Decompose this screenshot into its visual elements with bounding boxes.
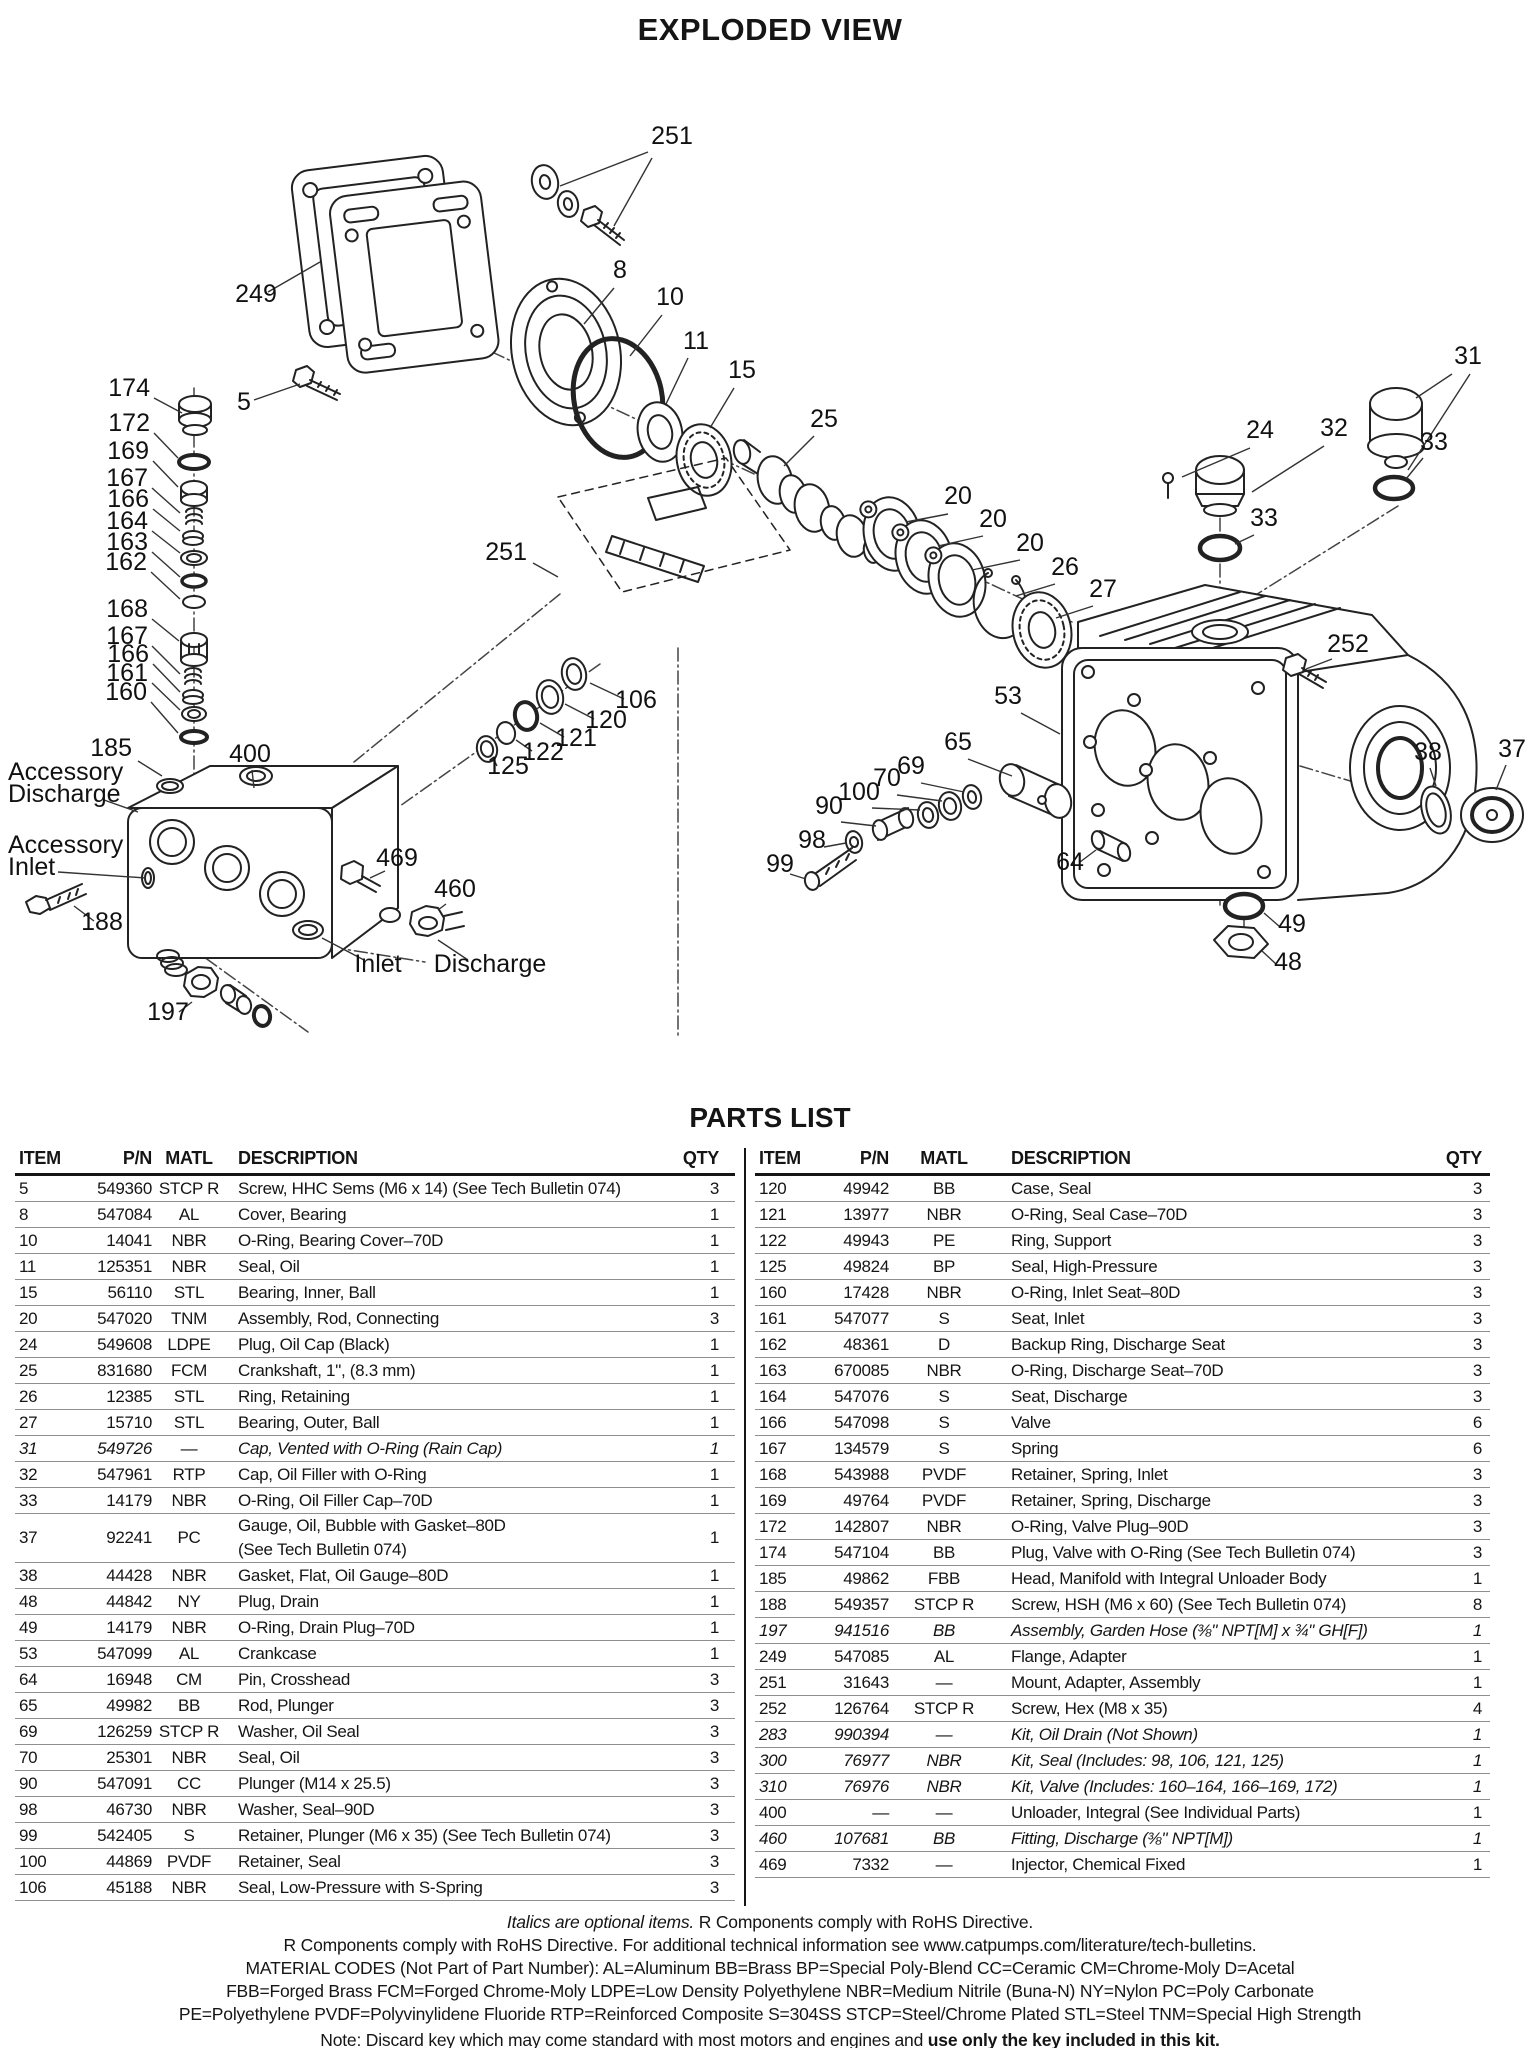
column-header: ITEM	[15, 1146, 76, 1175]
table-row: 2612385STLRing, Retaining1	[15, 1384, 735, 1410]
callout-label: 252	[1327, 630, 1369, 658]
parts-table-right: ITEMP/NMATLDESCRIPTIONQTY 12049942BBCase…	[755, 1146, 1490, 1878]
table-row: 99542405SRetainer, Plunger (M6 x 35) (Se…	[15, 1823, 735, 1849]
footnote-note: Note: Discard key which may come standar…	[0, 2030, 1540, 2048]
leader-line	[438, 904, 446, 910]
table-divider	[744, 1148, 746, 1906]
table-row: 3314179NBRO-Ring, Oil Filler Cap–70D1	[15, 1488, 735, 1514]
table-row: 11125351NBRSeal, Oil1	[15, 1254, 735, 1280]
leader-line	[872, 808, 920, 810]
part-oring-121	[512, 700, 539, 732]
callout-label: 5	[237, 388, 251, 416]
callout-label: 15	[728, 356, 756, 384]
callout-label: 32	[1320, 414, 1348, 442]
parts-list-title: PARTS LIST	[0, 1102, 1540, 1134]
table-row: 4914179NBRO-Ring, Drain Plug–70D1	[15, 1615, 735, 1641]
callout-label: 168	[106, 595, 148, 623]
callout-label: 197	[147, 998, 189, 1026]
table-row: 460107681BBFitting, Discharge (⅜" NPT[M]…	[755, 1826, 1490, 1852]
table-row: 400——Unloader, Integral (See Individual …	[755, 1800, 1490, 1826]
callout-label: 11	[683, 327, 709, 355]
callout-label: 469	[376, 844, 418, 872]
part-bearing-cover-8	[498, 268, 634, 435]
table-row: 164547076SSeat, Discharge3	[755, 1384, 1490, 1410]
table-row: 5549360STCP RScrew, HHC Sems (M6 x 14) (…	[15, 1175, 735, 1202]
part-rain-cap-group	[1368, 388, 1424, 499]
column-header: P/N	[76, 1146, 152, 1175]
table-row: 188549357STCP RScrew, HSH (M6 x 60) (See…	[755, 1592, 1490, 1618]
part-flange-adapter-249	[290, 154, 501, 375]
table-row: 3844428NBRGasket, Flat, Oil Gauge–80D1	[15, 1563, 735, 1589]
part-crankshaft-25	[732, 439, 883, 565]
callout-label: 8	[613, 256, 627, 284]
part-mount-hardware-251	[529, 163, 624, 245]
callout-label: Discharge	[8, 780, 121, 808]
callout-label: 20	[944, 482, 972, 510]
column-header: QTY	[1412, 1146, 1490, 1175]
table-row: 12249943PERing, Support3	[755, 1228, 1490, 1254]
callout-label: 37	[1498, 735, 1526, 763]
leader-line	[152, 552, 180, 577]
table-row: 8547084ALCover, Bearing1	[15, 1202, 735, 1228]
leader-line	[784, 436, 814, 466]
table-row: 16949764PVDFRetainer, Spring, Discharge3	[755, 1488, 1490, 1514]
callout-label: 188	[81, 908, 123, 936]
callout-label: 460	[434, 875, 476, 903]
part-screw-5	[293, 366, 340, 400]
leader-line	[560, 152, 648, 186]
callout-label: Inlet	[8, 853, 55, 881]
table-row: 197941516BBAssembly, Garden Hose (⅜" NPT…	[755, 1618, 1490, 1644]
table-row: 3792241PCGauge, Oil, Bubble with Gasket–…	[15, 1514, 735, 1563]
table-row: 283990394—Kit, Oil Drain (Not Shown)1	[755, 1722, 1490, 1748]
table-row: 161547077SSeat, Inlet3	[755, 1306, 1490, 1332]
exploded-view-diagram: 2512498101115525251202020262731243233332…	[0, 0, 1540, 1095]
part-connecting-rods-20	[857, 492, 992, 622]
leader-line	[151, 572, 180, 599]
leader-line	[614, 158, 652, 226]
table-row: 12049942BBCase, Seal3	[755, 1175, 1490, 1202]
callout-label: Discharge	[434, 950, 547, 978]
leader-line	[152, 619, 179, 641]
part-valve-stack	[179, 396, 211, 743]
table-row: 6549982BBRod, Plunger3	[15, 1693, 735, 1719]
callout-label: 172	[108, 409, 150, 437]
leader-line	[1416, 374, 1452, 398]
column-header: DESCRIPTION	[999, 1146, 1412, 1175]
callout-label: 100	[838, 778, 880, 806]
leader-line	[154, 398, 182, 413]
callout-label: 69	[897, 752, 925, 780]
callout-label: 53	[994, 682, 1022, 710]
callout-label: 20	[979, 505, 1007, 533]
leader-line	[153, 461, 178, 487]
part-oring-33a	[1375, 477, 1413, 499]
callout-label: 125	[487, 752, 529, 780]
column-header: P/N	[814, 1146, 889, 1175]
table-row: 53547099ALCrankcase1	[15, 1641, 735, 1667]
table-row: 18549862FBBHead, Manifold with Integral …	[755, 1566, 1490, 1592]
leader-line	[152, 488, 180, 513]
callout-label: 24	[1246, 416, 1274, 444]
leader-line	[153, 509, 180, 531]
callout-label: 25	[810, 405, 838, 433]
callout-label: 33	[1420, 428, 1448, 456]
table-header: ITEMP/NMATLDESCRIPTIONQTY	[755, 1146, 1490, 1175]
table-header: ITEMP/NMATLDESCRIPTIONQTY	[15, 1146, 735, 1175]
leader-line	[533, 563, 558, 577]
callout-label: 33	[1250, 504, 1278, 532]
leader-line	[254, 384, 300, 400]
callout-label: Inlet	[354, 950, 401, 978]
table-row: 16017428NBRO-Ring, Inlet Seat–80D3	[755, 1280, 1490, 1306]
table-row: 172142807NBRO-Ring, Valve Plug–90D3	[755, 1514, 1490, 1540]
leader-line	[630, 315, 662, 356]
leader-line	[824, 843, 846, 847]
table-row: 12113977NBRO-Ring, Seal Case–70D3	[755, 1202, 1490, 1228]
table-row: 25831680FCMCrankshaft, 1", (8.3 mm)1	[15, 1358, 735, 1384]
callout-label: 49	[1278, 910, 1306, 938]
part-screw-188	[26, 884, 86, 914]
column-header: MATL	[152, 1146, 226, 1175]
callout-label: 98	[798, 826, 826, 854]
table-row: 90547091CCPlunger (M14 x 25.5)3	[15, 1771, 735, 1797]
table-row: 1556110STLBearing, Inner, Ball1	[15, 1280, 735, 1306]
table-row: 174547104BBPlug, Val­ve with O-Ring (See…	[755, 1540, 1490, 1566]
leader-line	[921, 783, 964, 792]
table-row: 16248361DBackup Ring, Discharge Seat3	[755, 1332, 1490, 1358]
leader-line	[1496, 765, 1506, 790]
callout-label: 65	[944, 728, 972, 756]
table-row: 4697332—Injector, Chemical Fixed1	[755, 1852, 1490, 1878]
part-oring-33b	[1200, 536, 1240, 560]
table-row: 2715710STLBearing, Outer, Ball1	[15, 1410, 735, 1436]
part-oring-49	[1225, 894, 1263, 918]
leader-line	[152, 646, 180, 674]
table-row: 32547961RTPCap, Oil Filler with O-Ring1	[15, 1462, 735, 1488]
callout-label: 20	[1016, 529, 1044, 557]
table-row: 167134579SSpring6	[755, 1436, 1490, 1462]
callout-label: 64	[1056, 848, 1084, 876]
leader-line	[897, 795, 942, 801]
table-row: 31076976NBRKit, Valve (Includes: 160–164…	[755, 1774, 1490, 1800]
table-row: 30076977NBRKit, Seal (Includes: 98, 106,…	[755, 1748, 1490, 1774]
footnote-line-2: R Components comply with RoHS Directive.…	[0, 1935, 1540, 1956]
part-oring-163	[182, 575, 206, 587]
footnote-line-1: Italics are optional items. R Components…	[0, 1912, 1540, 1933]
leader-line	[138, 761, 162, 776]
table-row: 20547020TNMAssembly, Rod, Connecting3	[15, 1306, 735, 1332]
table-row: 252126764STCP RScrew, Hex (M8 x 35)4	[755, 1696, 1490, 1722]
table-row: 1014041NBRO-Ring, Bearing Cover–70D1	[15, 1228, 735, 1254]
table-row: 249547085ALFlange, Adapter1	[755, 1644, 1490, 1670]
table-row: 163670085NBRO-Ring, Discharge Seat–70D3	[755, 1358, 1490, 1384]
table-row: 166547098SValve6	[755, 1410, 1490, 1436]
leader-line	[1252, 446, 1324, 492]
callout-label: 10	[656, 283, 684, 311]
table-row: 168543988PVDFRetainer, Spring, Inlet3	[755, 1462, 1490, 1488]
column-header: MATL	[889, 1146, 999, 1175]
footnote-line-5: PE=Polyethylene PVDF=Polyvinylidene Fluo…	[0, 2004, 1540, 2025]
leader-line	[151, 702, 178, 733]
leader-line	[710, 388, 734, 428]
callout-label: 99	[766, 850, 794, 878]
footnote-line-4: FBB=Forged Brass FCM=Forged Chrome-Moly …	[0, 1981, 1540, 2002]
callout-label: 400	[229, 740, 271, 768]
parts-table-left: ITEMP/NMATLDESCRIPTIONQTY 5549360STCP RS…	[15, 1146, 735, 1901]
table-row: 25131643—Mount, Adapter, Assembly1	[755, 1670, 1490, 1696]
table-row: 6416948CMPin, Crosshead3	[15, 1667, 735, 1693]
leader-line	[666, 358, 688, 404]
callout-label: 27	[1089, 575, 1117, 603]
callout-label: 162	[105, 548, 147, 576]
leader-line	[152, 531, 180, 553]
table-row: 31549726—Cap, Vented with O-Ring (Rain C…	[15, 1436, 735, 1462]
callout-label: 31	[1454, 342, 1482, 370]
callout-label: 160	[105, 678, 147, 706]
leader-line	[154, 433, 178, 458]
table-row: 4844842NYPlug, Drain1	[15, 1589, 735, 1615]
leader-line	[841, 822, 876, 826]
exploded-view-page: EXPLODED VIEW	[0, 0, 1540, 2048]
table-row: 12549824BPSeal, High-Pressure3	[755, 1254, 1490, 1280]
callout-label: 90	[815, 792, 843, 820]
callout-label: 174	[108, 374, 150, 402]
part-oil-gauge-group	[1416, 783, 1523, 842]
callout-label: 48	[1274, 948, 1302, 976]
column-header: DESCRIPTION	[226, 1146, 646, 1175]
callout-label: 38	[1414, 738, 1442, 766]
table-row: 10645188NBRSeal, Low-Pressure with S-Spr…	[15, 1875, 735, 1901]
part-drain-plug-group	[1214, 894, 1268, 958]
table-row: 10044869PVDFRetainer, Seal3	[15, 1849, 735, 1875]
table-row: 24549608LDPEPlug, Oil Cap (Black)1	[15, 1332, 735, 1358]
part-washer-197	[252, 1005, 272, 1028]
part-oring-160	[181, 731, 207, 743]
leader-line	[1021, 713, 1060, 734]
part-oil-cap-group	[1163, 456, 1244, 560]
table-row: 7025301NBRSeal, Oil3	[15, 1745, 735, 1771]
footnote-line-3: MATERIAL CODES (Not Part of Part Number)…	[0, 1958, 1540, 1979]
callout-label: 26	[1051, 553, 1079, 581]
callout-label: 249	[235, 280, 277, 308]
callout-label: 169	[107, 437, 149, 465]
part-mount-key-251	[558, 458, 790, 592]
callout-label: 251	[485, 538, 527, 566]
callout-label: 251	[651, 122, 693, 150]
part-oring-172	[179, 455, 209, 469]
column-header: ITEM	[755, 1146, 814, 1175]
column-header: QTY	[646, 1146, 735, 1175]
table-row: 69126259STCP RWasher, Oil Seal3	[15, 1719, 735, 1745]
table-row: 9846730NBRWasher, Seal–90D3	[15, 1797, 735, 1823]
